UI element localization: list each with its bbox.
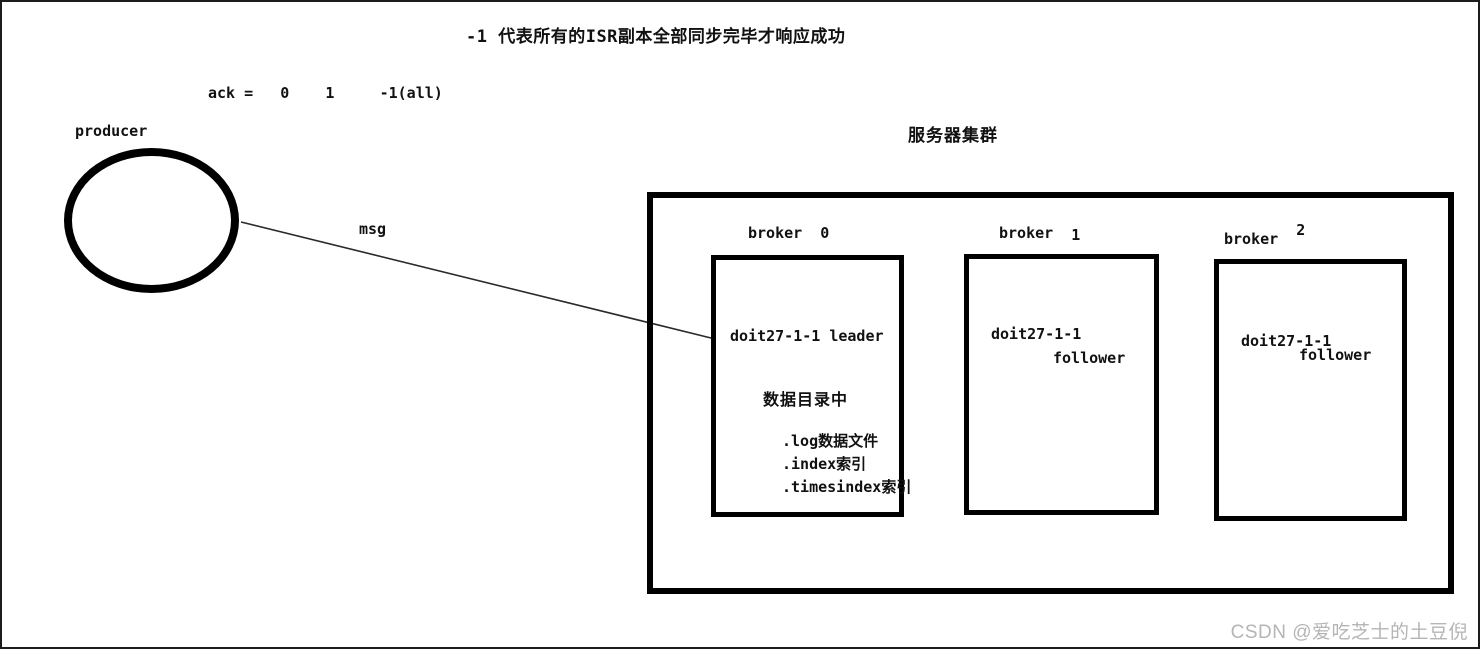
broker-0-box: doit27-1-1 leader 数据目录中 .log数据文件 .index索… bbox=[711, 255, 904, 517]
broker-0-partition-role: doit27-1-1 leader bbox=[730, 327, 884, 345]
broker-0-file-timesindex: .timesindex索引 bbox=[782, 476, 911, 497]
broker-2-name: broker bbox=[1224, 230, 1278, 248]
broker-1-label: broker1 bbox=[999, 224, 1080, 242]
broker-1-id: 1 bbox=[1071, 226, 1080, 244]
broker-0-role: leader bbox=[829, 327, 883, 345]
msg-label: msg bbox=[359, 220, 386, 238]
broker-0-id: 0 bbox=[820, 224, 829, 242]
broker-0-label: broker0 bbox=[748, 224, 829, 242]
producer-ellipse-shape bbox=[64, 148, 239, 293]
broker-0-partition: doit27-1-1 bbox=[730, 327, 820, 345]
broker-0-file-log: .log数据文件 bbox=[782, 430, 878, 451]
diagram-title: -1 代表所有的ISR副本全部同步完毕才响应成功 bbox=[466, 22, 845, 47]
broker-2-label: broker2 bbox=[1224, 230, 1305, 248]
csdn-watermark: CSDN @爱吃芝士的土豆倪 bbox=[1231, 617, 1468, 644]
broker-0-data-dir-title: 数据目录中 bbox=[763, 386, 848, 410]
producer-label: producer bbox=[75, 122, 147, 140]
broker-1-name: broker bbox=[999, 224, 1053, 242]
broker-2-box: doit27-1-1 follower bbox=[1214, 259, 1407, 521]
cluster-label: 服务器集群 bbox=[908, 121, 998, 146]
broker-0-name: broker bbox=[748, 224, 802, 242]
broker-2-id: 2 bbox=[1296, 221, 1305, 239]
broker-1-role: follower bbox=[1053, 349, 1125, 367]
broker-1-partition: doit27-1-1 bbox=[991, 325, 1081, 343]
broker-0-file-index: .index索引 bbox=[782, 453, 866, 474]
kafka-ack-diagram: -1 代表所有的ISR副本全部同步完毕才响应成功 ack = 0 1 -1(al… bbox=[0, 0, 1480, 649]
broker-1-box: doit27-1-1 follower bbox=[964, 254, 1159, 515]
broker-2-role: follower bbox=[1299, 346, 1371, 364]
ack-values-annotation: ack = 0 1 -1(all) bbox=[208, 84, 443, 102]
